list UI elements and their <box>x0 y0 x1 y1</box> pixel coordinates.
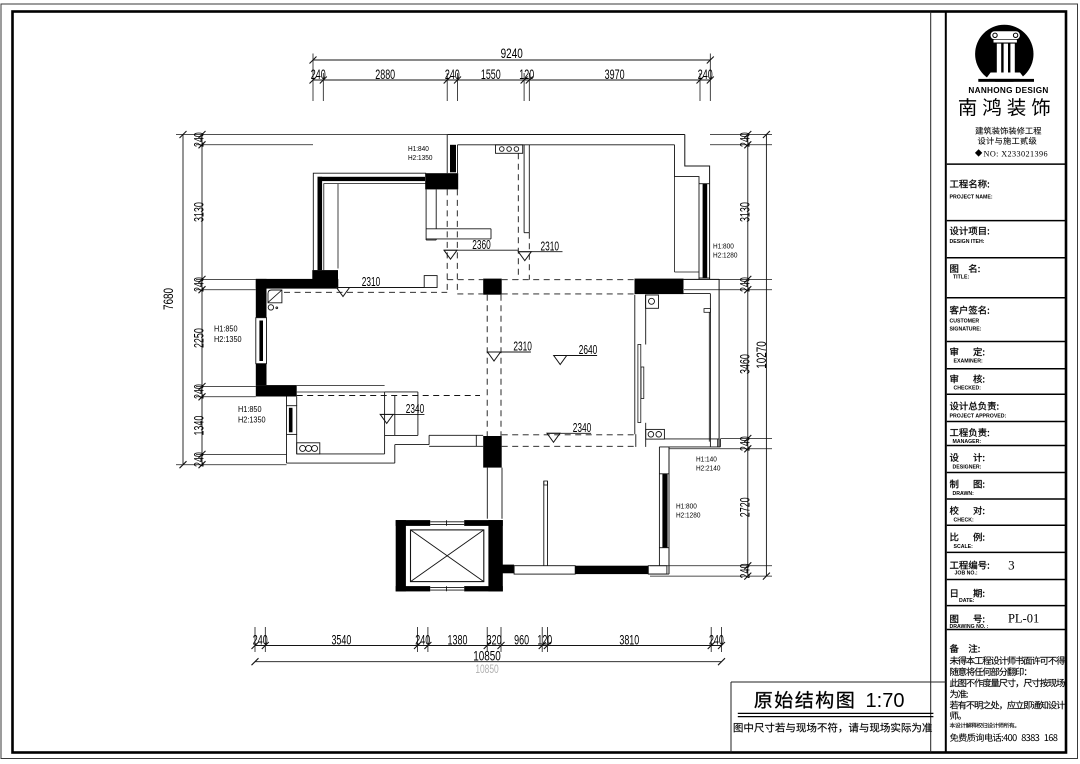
svg-text:10850: 10850 <box>475 664 499 677</box>
svg-text:2310: 2310 <box>362 275 380 289</box>
svg-text:2640: 2640 <box>579 343 597 357</box>
svg-text:1340: 1340 <box>190 415 207 435</box>
svg-text:320: 320 <box>487 632 502 649</box>
svg-text:2340: 2340 <box>573 421 591 435</box>
svg-text:240: 240 <box>190 452 207 467</box>
svg-text:7680: 7680 <box>160 288 176 310</box>
svg-text:2360: 2360 <box>472 238 490 252</box>
svg-text:NO: X233021396: NO: X233021396 <box>984 149 1049 158</box>
svg-text:1380: 1380 <box>448 632 468 649</box>
svg-text:240: 240 <box>190 132 207 147</box>
svg-text:240: 240 <box>736 563 753 578</box>
svg-text:H1:800: H1:800 <box>713 243 734 251</box>
svg-text:240: 240 <box>709 632 724 649</box>
svg-text:H2:1280: H2:1280 <box>676 512 700 520</box>
svg-text:CHECKED:: CHECKED: <box>954 385 982 391</box>
svg-text:3460: 3460 <box>736 354 753 374</box>
svg-text:960: 960 <box>514 632 529 649</box>
svg-text:240: 240 <box>190 384 207 399</box>
svg-text:CUSTOMER: CUSTOMER <box>950 318 980 324</box>
svg-text:240: 240 <box>698 66 713 83</box>
svg-text:3540: 3540 <box>331 632 351 649</box>
svg-text:10270: 10270 <box>753 341 769 369</box>
svg-text:3: 3 <box>1008 558 1015 573</box>
svg-text:DRAWING NO. :: DRAWING NO. : <box>950 624 989 630</box>
svg-text:240: 240 <box>253 632 268 649</box>
svg-text:2310: 2310 <box>513 340 531 354</box>
svg-text:H2:2140: H2:2140 <box>696 465 720 473</box>
svg-text:SCALE:: SCALE: <box>954 544 974 550</box>
svg-text:240: 240 <box>190 277 207 292</box>
svg-text:DESIGN ITEH:: DESIGN ITEH: <box>950 239 985 245</box>
svg-text:3970: 3970 <box>605 66 625 83</box>
svg-text:EXAMINER:: EXAMINER: <box>954 358 983 364</box>
svg-text:TITLE:: TITLE: <box>953 274 969 280</box>
svg-text:2250: 2250 <box>190 328 207 348</box>
svg-text:MANAGER:: MANAGER: <box>953 439 982 445</box>
svg-text:DESIGNER:: DESIGNER: <box>953 464 982 470</box>
svg-text:SIGNATURE:: SIGNATURE: <box>950 326 982 332</box>
svg-text:PROJECT NAME:: PROJECT NAME: <box>950 194 993 200</box>
svg-text:2720: 2720 <box>736 497 753 517</box>
svg-text:9240: 9240 <box>501 45 523 61</box>
svg-text:10850: 10850 <box>473 648 501 664</box>
svg-text:PL-01: PL-01 <box>1008 611 1039 625</box>
svg-text:DATE:: DATE: <box>959 598 975 604</box>
svg-text:240: 240 <box>311 66 326 83</box>
svg-text:H1:850: H1:850 <box>214 324 238 334</box>
svg-text:H1:800: H1:800 <box>676 503 697 511</box>
svg-text:240: 240 <box>736 436 753 451</box>
svg-text:H1:850: H1:850 <box>238 404 262 414</box>
svg-text:3130: 3130 <box>736 202 753 222</box>
svg-text:120: 120 <box>537 632 552 649</box>
svg-text:H1:140: H1:140 <box>696 456 717 464</box>
svg-text:H2:1350: H2:1350 <box>238 415 266 425</box>
svg-text:H2:1280: H2:1280 <box>713 252 737 260</box>
svg-text:2880: 2880 <box>375 66 395 83</box>
svg-text:240: 240 <box>736 277 753 292</box>
svg-text:H2:1350: H2:1350 <box>408 155 432 163</box>
svg-text:H1:840: H1:840 <box>408 146 429 154</box>
svg-text:240: 240 <box>415 632 430 649</box>
svg-text:3810: 3810 <box>619 632 639 649</box>
svg-text:PROJECT APPROVED:: PROJECT APPROVED: <box>950 413 1007 419</box>
svg-text:2310: 2310 <box>540 240 558 254</box>
svg-text:120: 120 <box>519 66 534 83</box>
svg-text:CHECK:: CHECK: <box>954 517 974 523</box>
svg-text:1550: 1550 <box>481 66 501 83</box>
svg-text:DRAWN:: DRAWN: <box>953 491 975 497</box>
svg-text:JOB NO.:: JOB NO.: <box>955 570 978 576</box>
svg-text:240: 240 <box>736 132 753 147</box>
svg-text:1:70: 1:70 <box>866 690 905 712</box>
svg-text:H2:1350: H2:1350 <box>214 334 242 344</box>
svg-text:2340: 2340 <box>406 402 424 416</box>
svg-text:NANHONG DESIGN: NANHONG DESIGN <box>968 86 1048 95</box>
svg-text:3130: 3130 <box>190 202 207 222</box>
svg-text:240: 240 <box>445 66 460 83</box>
